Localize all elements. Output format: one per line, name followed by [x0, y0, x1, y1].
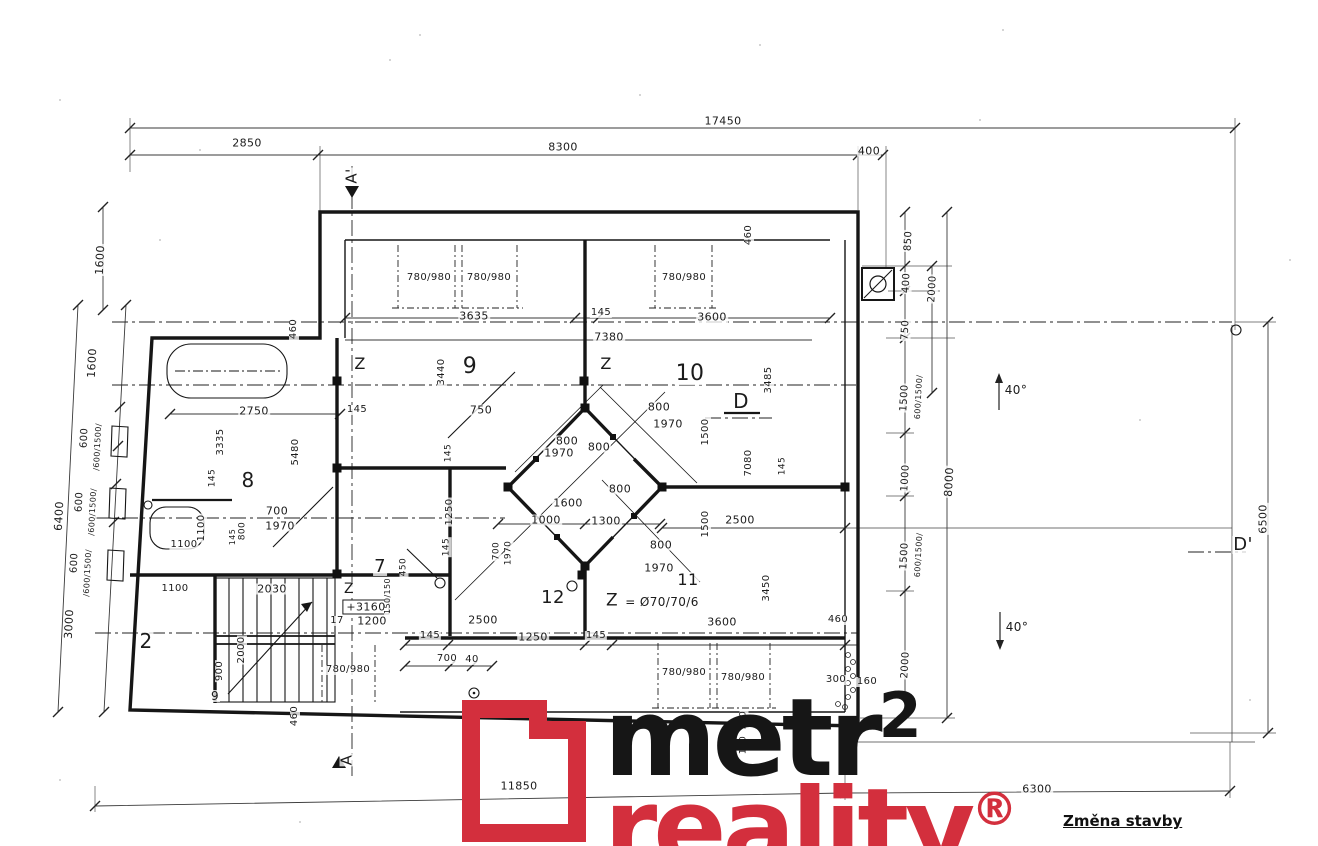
dim-label: 1500 [899, 383, 911, 413]
dim-label: 1600 [94, 244, 107, 276]
dim-label: 800 [555, 436, 579, 447]
dim-label: 145 [590, 308, 612, 318]
dim-bottom-left: 11850 [500, 781, 539, 792]
section-marker-d-prime: D' [1232, 536, 1254, 554]
dim-label: 460 [289, 318, 299, 340]
dim-label: 600 [74, 491, 85, 514]
window-size: 780/980 [661, 273, 707, 283]
dim-label: 750 [900, 319, 911, 342]
window-size: 780/980 [406, 273, 452, 283]
column-marker-z: Z [343, 582, 355, 596]
dim-label: 1100 [169, 540, 198, 550]
dim-label: /600/1500/ [88, 487, 99, 537]
dim-label: 3635 [458, 311, 490, 322]
dim-total-left: 6400 [53, 500, 66, 532]
dim-total-width: 17450 [704, 116, 743, 127]
dim-label: 600/1500/ [914, 374, 924, 421]
dim-label: 3335 [216, 427, 226, 456]
logo-word-reality: reality® [604, 777, 1017, 846]
column-marker-z: Z [353, 356, 366, 372]
dim-label: 2500 [467, 615, 499, 626]
dim-label: 460 [744, 224, 754, 246]
dim-label: 700 [436, 654, 458, 664]
dim-label: 600 [79, 427, 90, 450]
dim-label: 700 [265, 506, 289, 517]
dim-label: 145 [209, 468, 218, 488]
dim-label: 850 [903, 230, 914, 253]
dim-label: 700 [493, 541, 502, 561]
dim-label: 8300 [547, 142, 579, 153]
dim-label: 145 [229, 528, 237, 546]
room-10: 10 [675, 363, 706, 385]
dim-label: 450 [400, 557, 409, 577]
logo-registered-icon: ® [971, 782, 1017, 836]
roof-slope-down: 40° [1005, 621, 1029, 633]
dim-label: 1200 [356, 616, 388, 627]
dim-label: /600/1500/ [83, 548, 94, 598]
blueprint-page: 1745028508300400A'16001600600/600/1500/6… [0, 0, 1318, 846]
dim-label: 3600 [706, 617, 738, 628]
section-marker-a-prime: A' [345, 167, 360, 184]
room-12: 12 [540, 589, 566, 607]
room-9: 9 [462, 356, 478, 378]
dim-bottom-right: 6300 [1021, 784, 1053, 795]
dim-label: 2750 [238, 406, 270, 417]
column-marker-z: Z [605, 593, 619, 610]
window-size: 780/980 [325, 665, 371, 675]
dim-label: 1970 [643, 563, 675, 574]
room-8: 8 [240, 470, 255, 490]
dim-label: 800 [587, 442, 611, 453]
column-marker-z: Z [599, 356, 612, 372]
dim-label: 1600 [86, 347, 99, 379]
dim-label: 750 [469, 405, 493, 416]
room-7: 7 [373, 558, 387, 576]
dim-label: 5480 [291, 437, 301, 466]
dim-label: 2000 [237, 635, 247, 664]
dim-label: 1300 [590, 516, 622, 527]
dim-label: 1250 [517, 632, 549, 643]
dim-label: 600/1500/ [914, 532, 924, 579]
room-11: 11 [676, 572, 699, 588]
dim-label: 2850 [231, 138, 263, 149]
section-marker-d: D [732, 391, 750, 411]
dim-label: 1250 [445, 497, 455, 526]
dim-label: 1500 [701, 509, 711, 538]
dim-label: 17 [329, 616, 345, 626]
dim-label: 7080 [744, 448, 754, 477]
dim-label: 3440 [437, 357, 447, 386]
metr2-reality-logo: metr2 reality® [604, 686, 1017, 846]
dim-label: 2500 [724, 515, 756, 526]
dim-label: 900 [215, 660, 225, 682]
dim-label: 145 [346, 405, 368, 415]
dim-label: 600 [69, 552, 80, 575]
change-note: Změna stavby [1063, 812, 1182, 830]
room-2: 2 [138, 631, 153, 651]
window-size: 780/980 [466, 273, 512, 283]
dim-label: 1970 [264, 521, 296, 532]
dim-label: 1970 [505, 540, 514, 567]
dim-label: 3000 [63, 608, 76, 640]
logo-sup-2: 2 [879, 679, 922, 752]
dim-label: 1970 [652, 419, 684, 430]
dim-label: 400 [901, 272, 912, 295]
dim-label: 3600 [696, 312, 728, 323]
dim-label: 145 [445, 443, 454, 463]
dim-label: 7380 [593, 332, 625, 343]
dim-label: 800 [649, 540, 673, 551]
dim-label: 800 [647, 402, 671, 413]
dim-label: 1970 [543, 448, 575, 459]
dim-label: 1500 [899, 541, 911, 571]
roof-slope-up: 40° [1004, 384, 1028, 396]
dim-label: 400 [857, 146, 881, 157]
dim-far-right: 6500 [1258, 503, 1269, 535]
dim-label: 3485 [764, 365, 774, 394]
dim-label: 2030 [256, 584, 288, 595]
dim-total-right: 8000 [943, 466, 956, 498]
dim-label: 40 [464, 655, 480, 665]
dim-label: 1100 [160, 584, 189, 594]
dim-label: 460 [827, 615, 849, 625]
dim-label: /600/1500/ [93, 422, 104, 472]
dim-label: 145 [443, 537, 452, 557]
dim-label: 800 [608, 484, 632, 495]
section-marker-a: A [340, 754, 355, 767]
dim-label: 1600 [552, 498, 584, 509]
dim-label: 145 [779, 456, 788, 476]
dim-label: 3450 [762, 573, 772, 602]
dim-label: 2000 [900, 650, 912, 680]
dim-label: 1100 [197, 513, 207, 542]
dim-label: 2000 [927, 274, 939, 304]
dim-label: 145 [585, 631, 607, 641]
dim-label: 150/150 [384, 577, 392, 615]
dim-label: 1000 [530, 515, 562, 526]
stair-count: 9 [210, 690, 220, 702]
dim-label: 1000 [900, 463, 912, 493]
dim-label: 800 [239, 521, 248, 541]
dim-label: 1500 [701, 417, 711, 446]
dim-label: 145 [419, 631, 441, 641]
column-spec: = Ø70/70/6 [624, 596, 700, 608]
dim-label: 460 [290, 705, 300, 727]
